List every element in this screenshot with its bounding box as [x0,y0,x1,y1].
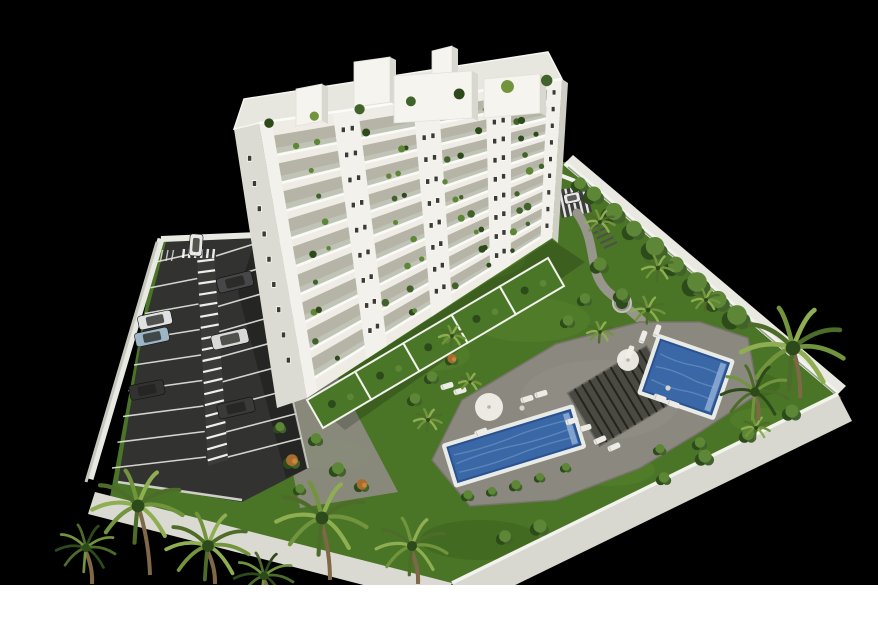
screenshot [0,0,878,640]
architectural-render [0,0,878,585]
page-margin [0,585,878,640]
render-canvas [0,0,878,585]
parked-car [189,234,204,257]
